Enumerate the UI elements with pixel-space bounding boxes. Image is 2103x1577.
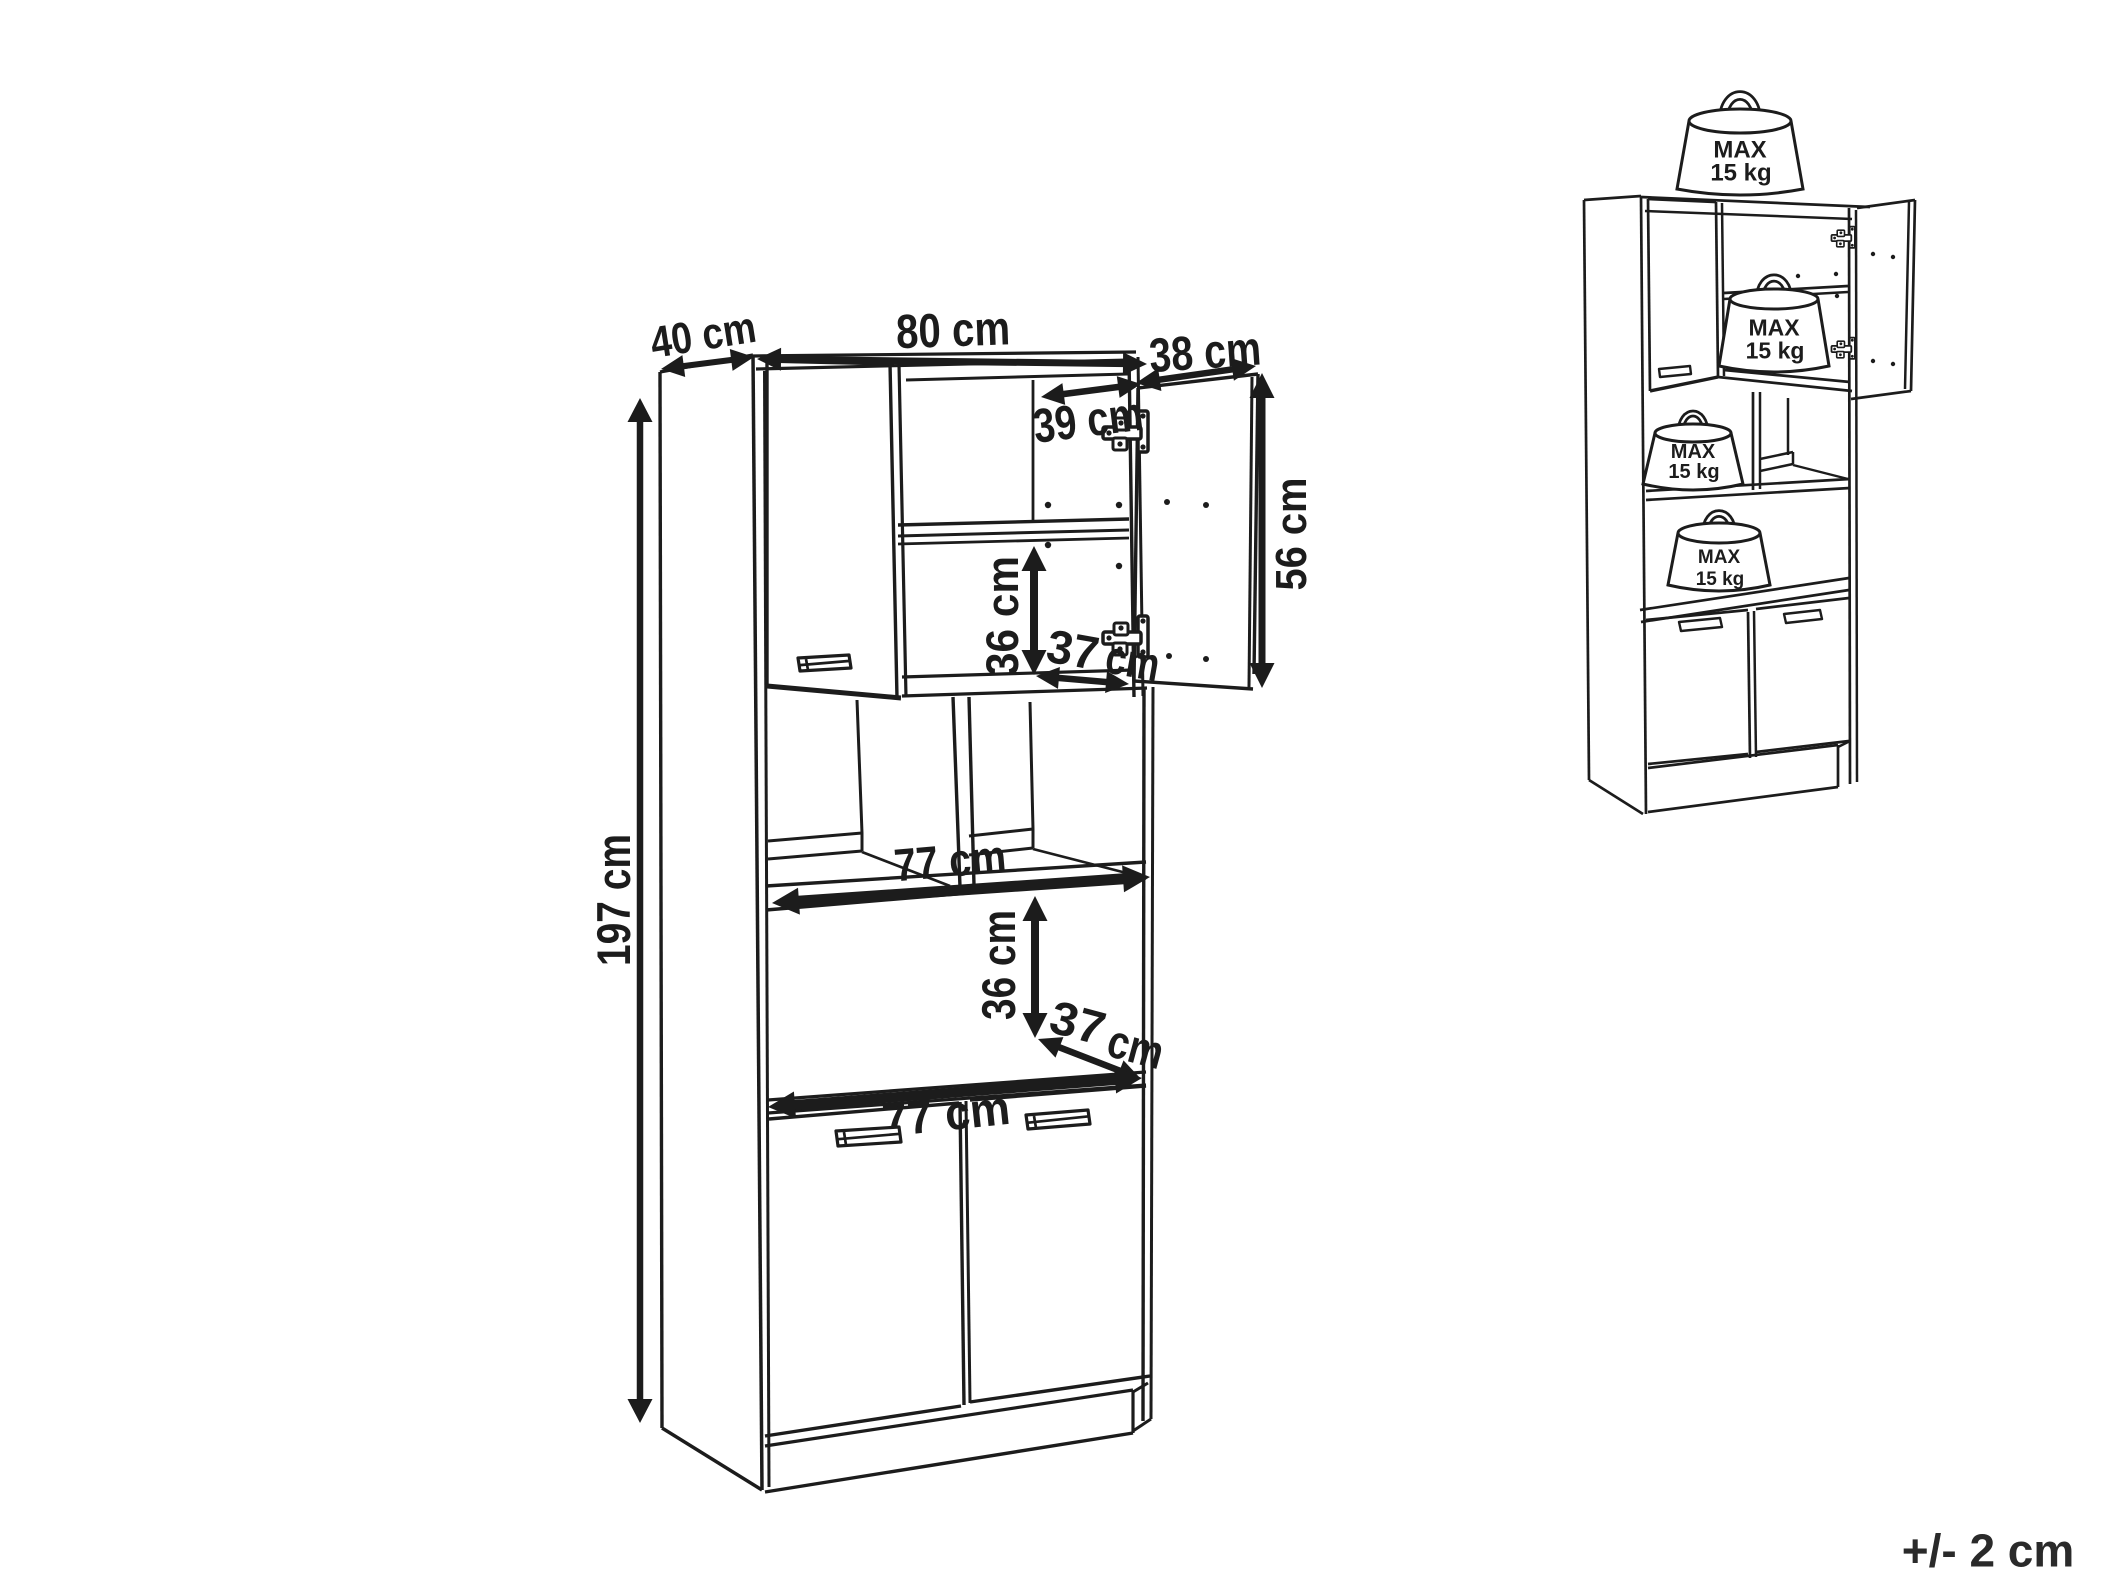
svg-text:15 kg: 15 kg [1710,160,1771,187]
svg-text:36 cm: 36 cm [972,910,1025,1020]
svg-text:MAX: MAX [1671,441,1716,463]
svg-text:+/- 2 cm: +/- 2 cm [1902,1525,2075,1577]
svg-text:197 cm: 197 cm [587,834,640,966]
svg-text:80 cm: 80 cm [895,302,1011,359]
svg-text:36 cm: 36 cm [977,556,1028,676]
svg-text:15 kg: 15 kg [1668,461,1719,483]
svg-text:38 cm: 38 cm [1147,322,1262,383]
svg-text:77 cm: 77 cm [892,830,1008,892]
svg-text:37: 37 [1043,619,1103,680]
svg-text:56 cm: 56 cm [1267,478,1316,591]
svg-text:MAX: MAX [1698,547,1741,568]
svg-text:cm: cm [1102,630,1164,692]
svg-text:15 kg: 15 kg [1746,337,1805,363]
svg-text:15 kg: 15 kg [1696,569,1745,590]
